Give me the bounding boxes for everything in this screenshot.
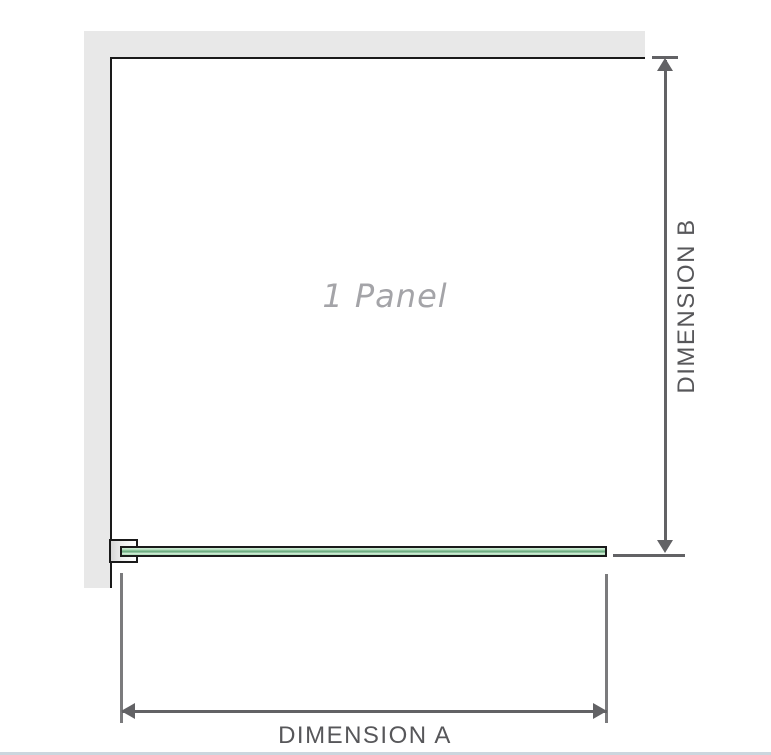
dimension-b-label: DIMENSION B	[673, 218, 701, 393]
wall-left-band	[84, 31, 110, 588]
wall-top-band	[84, 31, 645, 58]
dimension-a-line	[122, 710, 607, 713]
dimension-a-left-extension	[120, 573, 123, 723]
dimension-a-right-extension	[605, 574, 608, 723]
panel-count-label: 1 Panel	[322, 277, 447, 315]
glass-panel	[120, 546, 607, 557]
dimension-b-bottom-cap	[613, 554, 685, 557]
arrow-right-icon	[593, 703, 607, 719]
enclosure-top-edge	[110, 57, 645, 59]
enclosure-left-edge	[110, 57, 112, 588]
panel-configuration-diagram: 1 Panel DIMENSION B DIMENSION A	[0, 0, 771, 755]
dimension-a-label: DIMENSION A	[278, 722, 452, 750]
arrow-down-icon	[657, 540, 673, 553]
dimension-b-line	[664, 60, 667, 543]
